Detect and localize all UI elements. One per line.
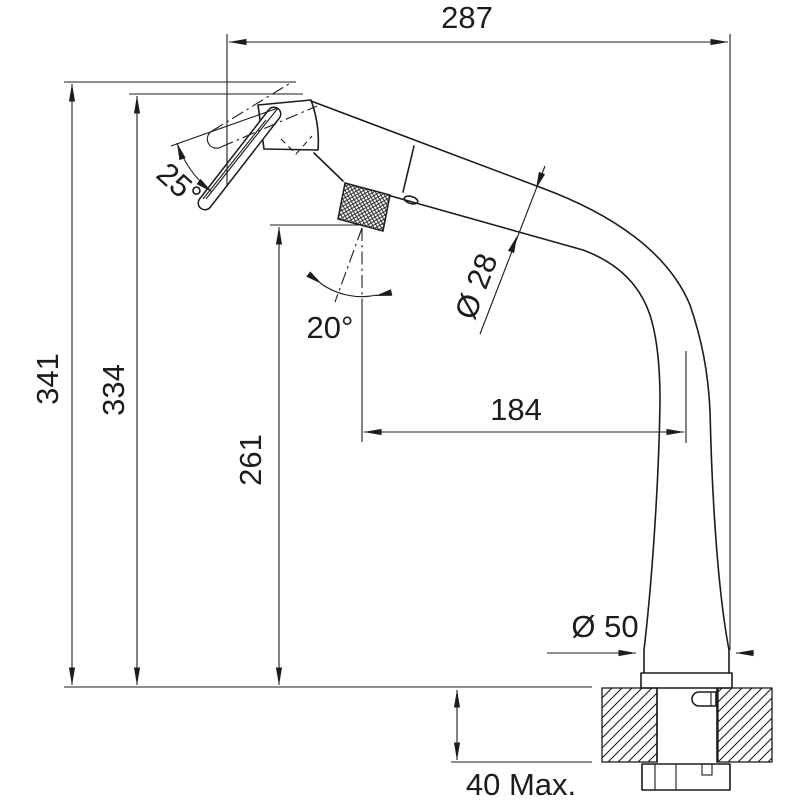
dia28-arrow-lower — [508, 235, 520, 253]
mounting-clip — [692, 692, 716, 706]
control-knob — [338, 183, 390, 231]
raised-head-phantom-upper — [212, 82, 292, 131]
label-base-diameter: Ø 50 — [571, 609, 638, 644]
spout-lower-edge — [314, 153, 660, 673]
angle25-leg-lower — [206, 108, 278, 199]
counter-section-right — [718, 688, 772, 762]
spout-upper-edge — [311, 101, 729, 673]
label-overall-height: 341 — [30, 353, 65, 405]
label-spout-reach: 287 — [441, 0, 493, 35]
joint-hidden-edge — [281, 136, 312, 154]
angle20-arrow-right — [374, 289, 392, 299]
angle20-arc — [320, 283, 377, 297]
technical-drawing-page: 287 341 334 261 184 Ø 28 Ø 50 40 Max. 25… — [0, 0, 800, 800]
counter-section-left — [602, 688, 657, 762]
mounting-nut-tab — [702, 764, 712, 775]
spout-seam — [403, 146, 414, 192]
shank-edges — [657, 688, 717, 762]
label-max-deck-thickness: 40 Max. — [466, 767, 576, 800]
label-spout-diameter: Ø 28 — [448, 249, 505, 324]
handle-centerline-tilted — [335, 228, 362, 302]
label-handle-lever-angle: 20° — [307, 310, 354, 345]
spray-head-fill — [205, 114, 274, 203]
label-head-height: 334 — [96, 364, 131, 416]
hose-outlet-detail — [403, 195, 418, 206]
faucet-dimension-drawing: 287 341 334 261 184 Ø 28 Ø 50 40 Max. 25… — [0, 0, 800, 800]
raised-head-phantom-tip — [207, 131, 221, 148]
faucet-outline — [203, 82, 772, 790]
base-flange — [641, 673, 732, 688]
label-handle-pivot-height: 261 — [233, 434, 268, 486]
mounting-nut-facets — [655, 764, 676, 790]
label-handle-to-axis: 184 — [490, 392, 542, 427]
dimension-labels: 287 341 334 261 184 Ø 28 Ø 50 40 Max. 25… — [30, 0, 639, 800]
